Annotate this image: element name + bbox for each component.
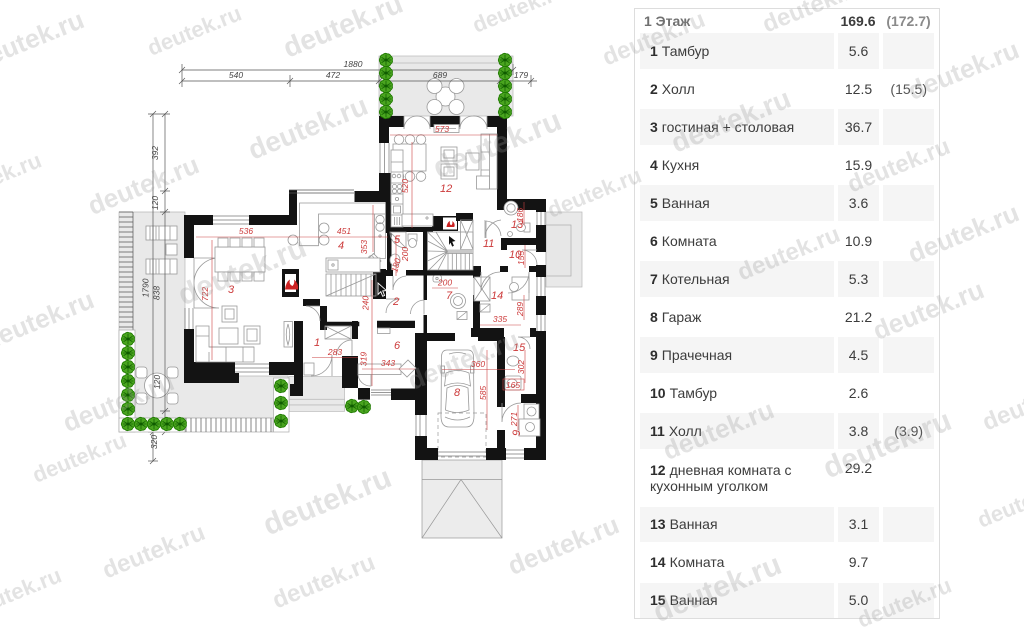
svg-text:540: 540 (229, 70, 243, 80)
svg-text:271: 271 (509, 412, 519, 427)
svg-text:451: 451 (337, 226, 351, 236)
svg-text:283: 283 (327, 347, 342, 357)
svg-text:320: 320 (149, 435, 159, 449)
svg-text:3: 3 (228, 284, 235, 296)
svg-text:335: 335 (493, 314, 507, 324)
svg-text:8: 8 (454, 387, 461, 399)
svg-text:722: 722 (200, 287, 210, 301)
svg-text:5: 5 (394, 234, 401, 246)
svg-text:14: 14 (491, 290, 503, 302)
svg-text:289: 289 (515, 302, 525, 317)
svg-text:165: 165 (506, 380, 520, 390)
svg-text:2: 2 (392, 296, 399, 308)
svg-text:15: 15 (513, 342, 526, 354)
svg-text:120: 120 (150, 196, 160, 210)
svg-text:536: 536 (239, 226, 253, 236)
svg-text:9: 9 (511, 430, 523, 436)
svg-text:7: 7 (446, 290, 453, 302)
svg-text:343: 343 (381, 358, 395, 368)
svg-text:353: 353 (359, 240, 369, 254)
svg-text:186: 186 (515, 208, 525, 222)
svg-text:4: 4 (338, 240, 344, 252)
svg-text:6: 6 (394, 340, 401, 352)
svg-text:302: 302 (516, 360, 526, 374)
svg-text:573: 573 (435, 124, 449, 134)
svg-text:179: 179 (514, 70, 528, 80)
svg-text:520: 520 (400, 179, 410, 193)
svg-text:200: 200 (400, 247, 410, 262)
svg-text:12: 12 (440, 183, 452, 195)
svg-text:472: 472 (326, 70, 340, 80)
svg-text:1880: 1880 (344, 59, 363, 69)
svg-text:240: 240 (361, 296, 371, 311)
svg-text:689: 689 (433, 70, 447, 80)
svg-text:1790: 1790 (141, 278, 151, 297)
svg-text:200: 200 (437, 278, 452, 288)
svg-text:319: 319 (359, 352, 369, 366)
svg-text:120: 120 (152, 375, 162, 389)
svg-text:838: 838 (152, 286, 162, 300)
svg-text:155: 155 (516, 251, 526, 265)
svg-text:360: 360 (471, 359, 485, 369)
svg-text:11: 11 (483, 238, 494, 250)
svg-text:585: 585 (478, 386, 488, 400)
svg-text:392: 392 (150, 146, 160, 160)
svg-text:1: 1 (314, 337, 320, 349)
